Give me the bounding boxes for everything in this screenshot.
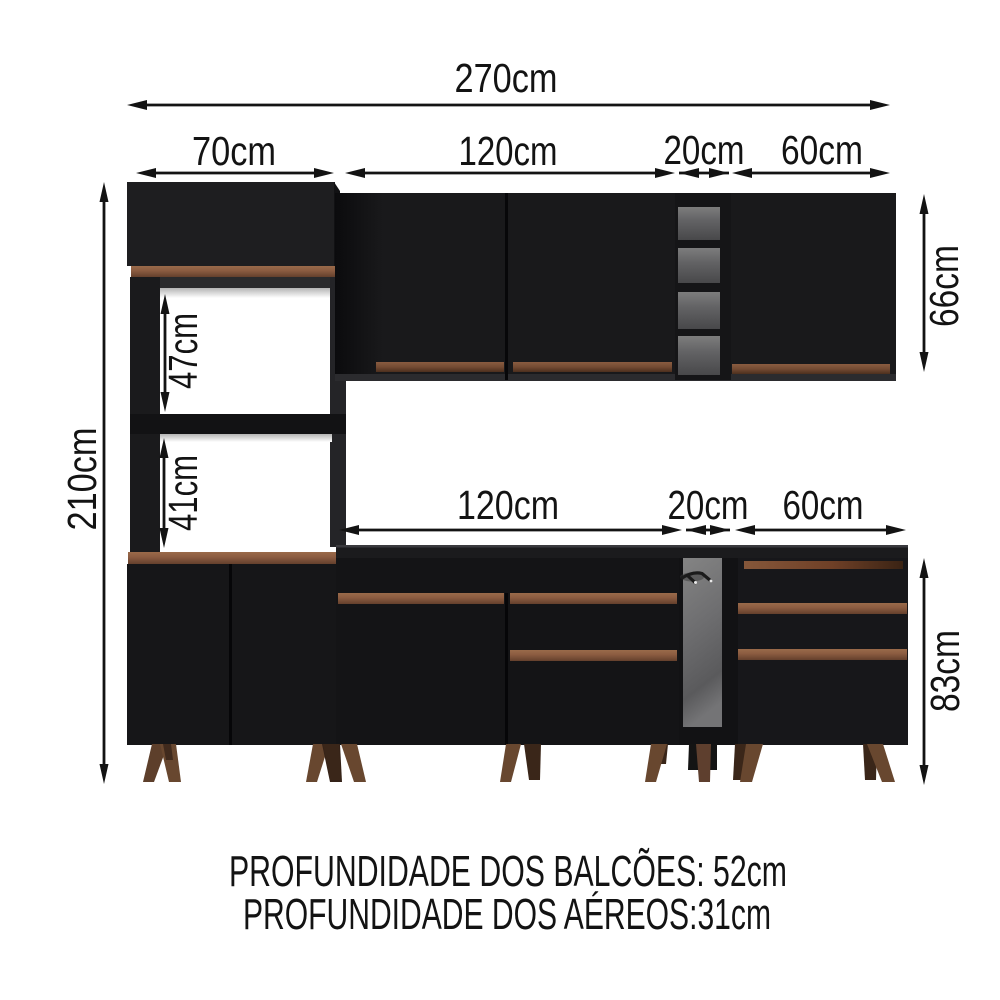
svg-text:70cm: 70cm <box>192 128 276 174</box>
svg-text:66cm: 66cm <box>921 245 967 327</box>
svg-text:60cm: 60cm <box>783 482 864 528</box>
svg-text:PROFUNDIDADE DOS BALCÕES: 52cm: PROFUNDIDADE DOS BALCÕES: 52cm <box>229 846 787 896</box>
svg-text:PROFUNDIDADE DOS AÉREOS:31cm: PROFUNDIDADE DOS AÉREOS:31cm <box>243 890 771 939</box>
svg-text:47cm: 47cm <box>160 313 206 389</box>
svg-text:210cm: 210cm <box>59 428 105 531</box>
svg-text:41cm: 41cm <box>160 455 206 531</box>
svg-text:20cm: 20cm <box>664 127 745 173</box>
svg-text:120cm: 120cm <box>457 482 559 528</box>
svg-text:120cm: 120cm <box>459 128 558 174</box>
svg-text:83cm: 83cm <box>922 630 968 712</box>
svg-text:60cm: 60cm <box>781 127 863 173</box>
svg-text:20cm: 20cm <box>668 482 749 528</box>
svg-text:270cm: 270cm <box>455 55 558 101</box>
